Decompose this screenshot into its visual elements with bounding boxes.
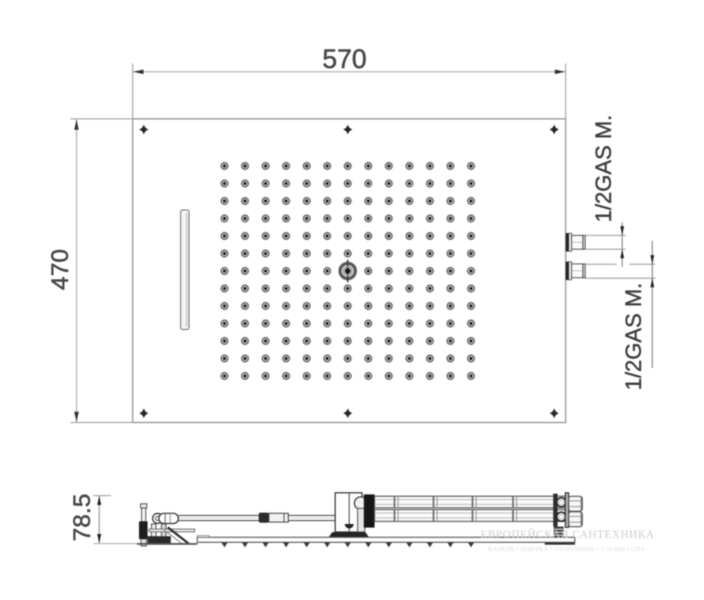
svg-text:1/2GAS M.: 1/2GAS M.: [591, 115, 616, 223]
svg-text:ЕВРОПЕЙСКАЯ САНТЕХНИКА: ЕВРОПЕЙСКАЯ САНТЕХНИКА: [480, 529, 654, 541]
svg-text:570: 570: [322, 44, 366, 74]
svg-text:КАПЕЛЬ • ПЛИТКА • ОТОПЛЕНИЕ •: КАПЕЛЬ • ПЛИТКА • ОТОПЛЕНИЕ • САУНЫ • СП…: [488, 546, 645, 553]
svg-text:78.5: 78.5: [69, 494, 96, 542]
svg-text:1/2GAS M.: 1/2GAS M.: [621, 283, 646, 391]
svg-text:470: 470: [47, 249, 74, 290]
